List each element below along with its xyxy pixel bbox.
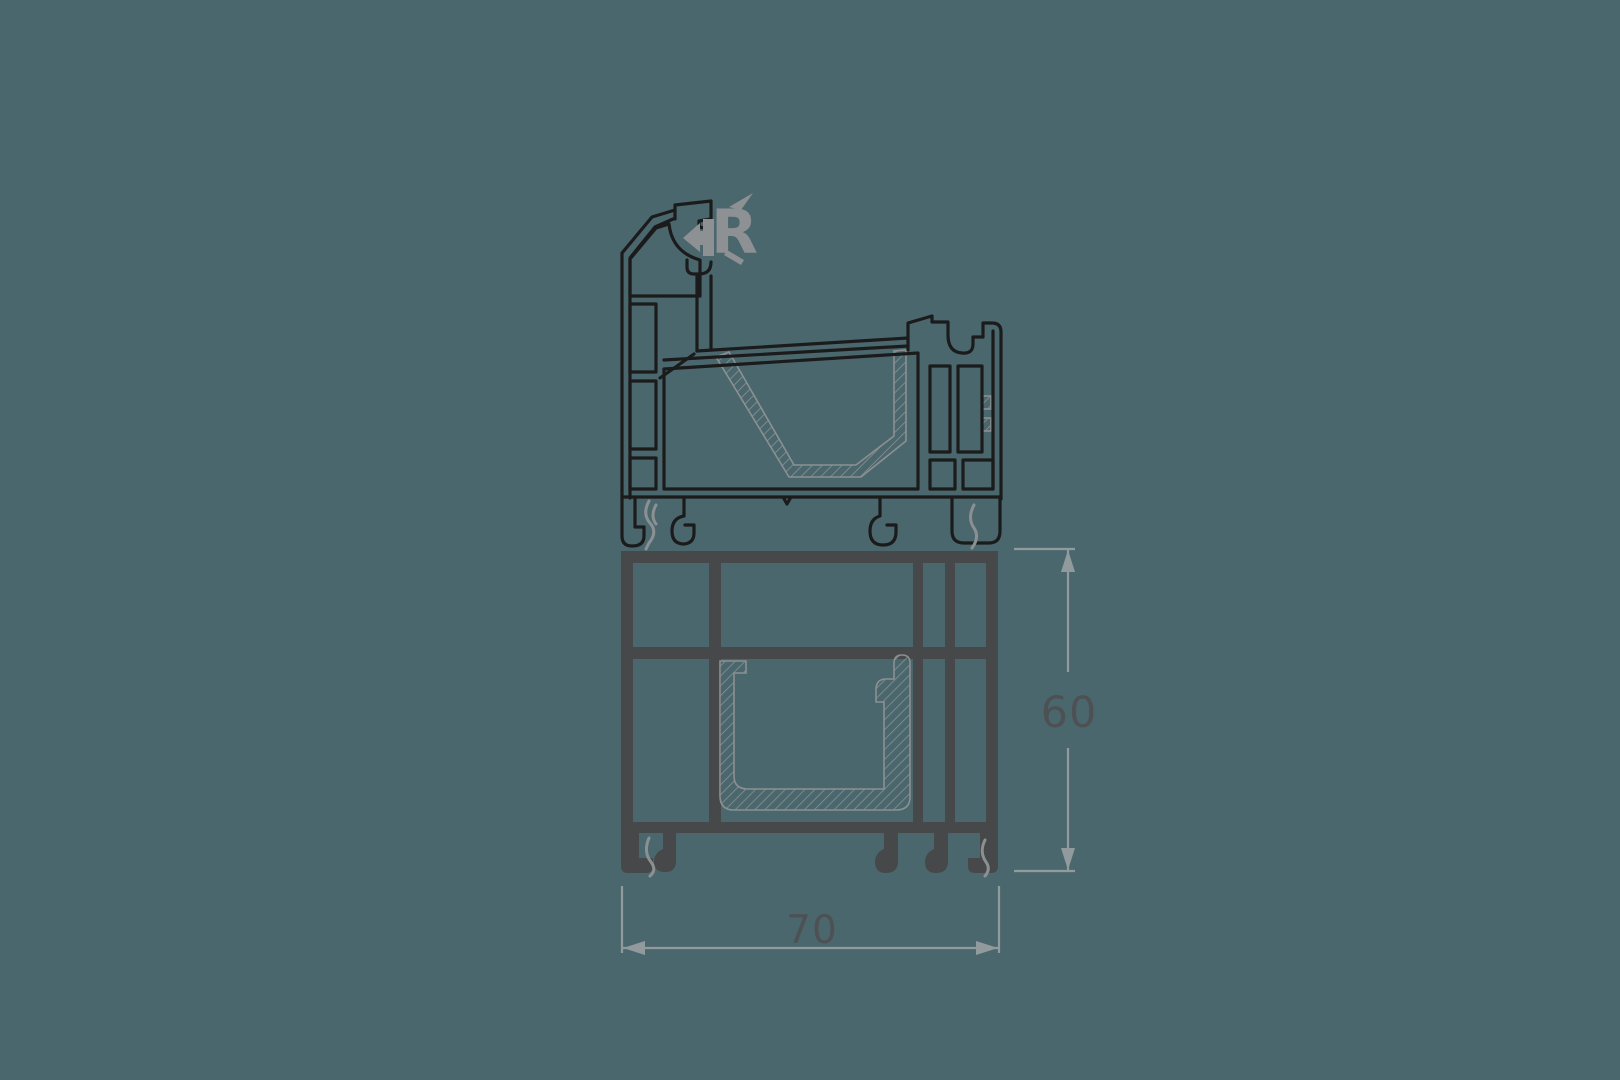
frame-chamber <box>923 563 945 647</box>
frame-chamber <box>633 563 709 647</box>
logo-letter: R <box>711 197 758 268</box>
frame-profile <box>621 551 998 873</box>
frame-chamber <box>955 563 986 647</box>
profile-drawing-canvas: R 60 70 <box>0 0 1620 1080</box>
dimension-height-value: 60 <box>1041 688 1098 738</box>
technical-drawing-page: R 60 70 <box>0 0 1620 1080</box>
frame-chamber <box>633 659 709 822</box>
frame-chamber <box>923 659 945 822</box>
frame-chamber <box>721 563 913 647</box>
frame-chamber <box>955 659 986 822</box>
dimension-width-value: 70 <box>786 908 838 953</box>
